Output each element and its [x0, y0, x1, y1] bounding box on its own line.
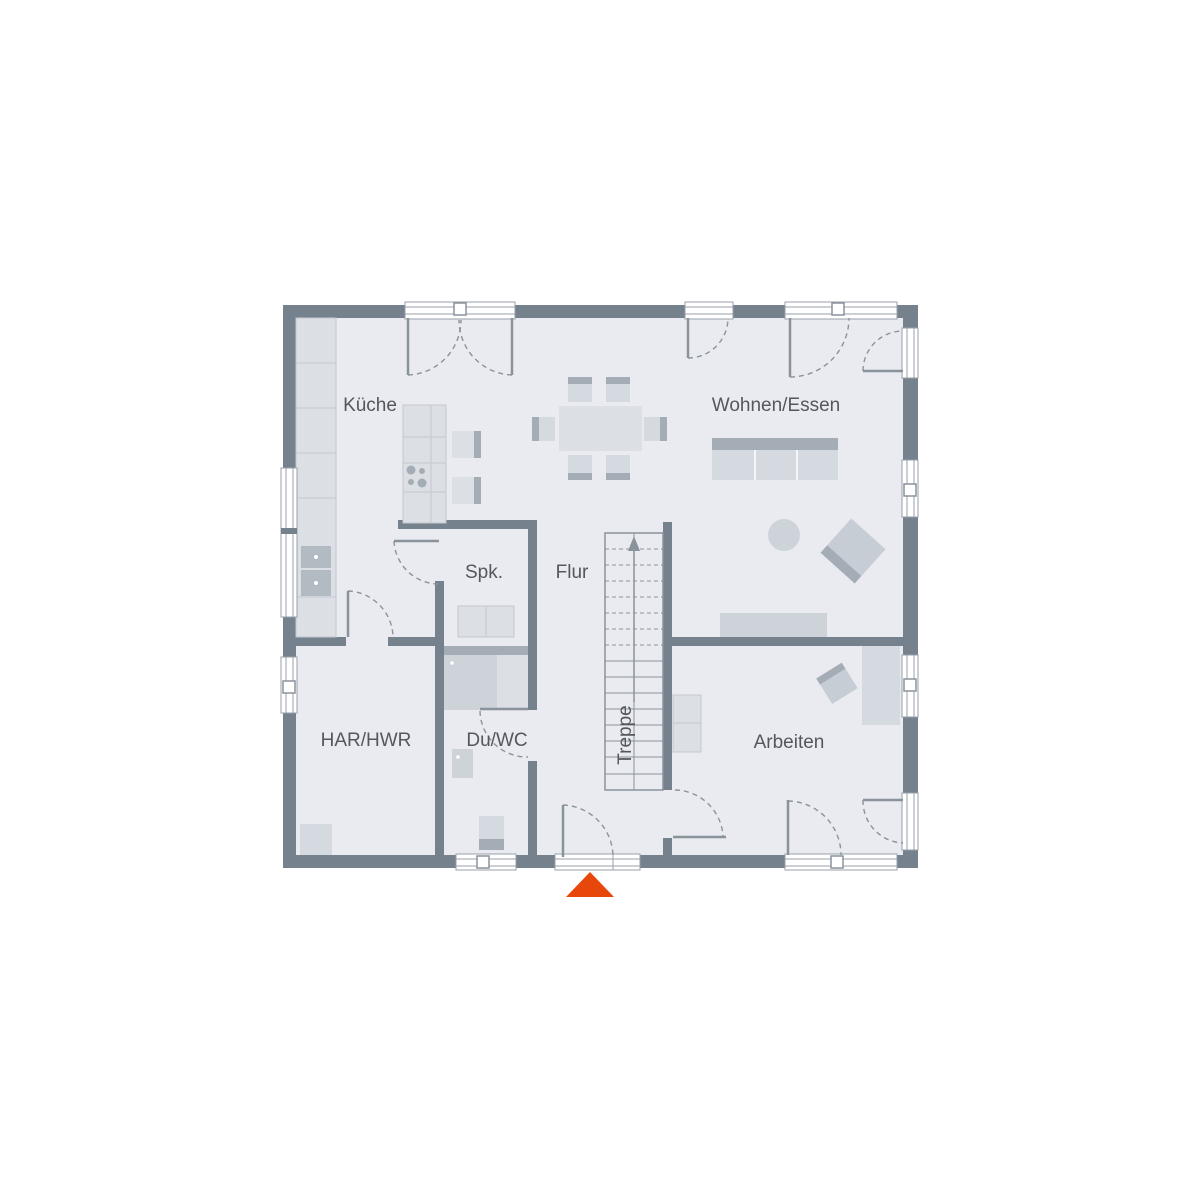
wall-duwc-right-top — [528, 646, 537, 710]
window-left-kitchen-mullion — [281, 528, 297, 534]
wall-har-top-right — [388, 637, 444, 646]
label-treppe: Treppe — [615, 705, 636, 765]
floorplan-canvas: Küche Wohnen/Essen Spk. Flur Treppe HAR/… — [0, 0, 1200, 1200]
floorplan-svg: Küche Wohnen/Essen Spk. Flur Treppe HAR/… — [0, 0, 1200, 1200]
wc-tank — [479, 816, 504, 839]
wall-arbeiten-top — [672, 637, 903, 646]
dining-chair-bottom-2-back — [606, 473, 630, 480]
kitchen-island-block — [403, 405, 446, 523]
entrance-marker-triangle — [566, 872, 614, 897]
dining-chair-right-back — [660, 417, 667, 441]
dining-chair-top-1-back — [568, 377, 592, 384]
wall-arbeiten-stub — [663, 838, 672, 855]
utility-appliance — [300, 824, 332, 855]
shower-head-band — [444, 646, 528, 655]
dining-chair-left-back — [532, 417, 539, 441]
wc-bowl — [479, 839, 504, 850]
cooktop-burner-3 — [408, 479, 414, 485]
window-left-kitchen — [281, 468, 297, 617]
wall-duwc-left — [435, 646, 444, 855]
wall-duwc-right-bottom — [528, 761, 537, 855]
dining-chair-bottom-1-back — [568, 473, 592, 480]
marker-top-kitchen — [454, 303, 466, 315]
dining-table — [559, 406, 642, 451]
wall-har-top-left — [296, 637, 346, 646]
marker-top-right — [832, 303, 844, 315]
sofa-backrest — [712, 438, 838, 450]
label-har-hwr: HAR/HWR — [321, 730, 412, 751]
wall-stair-right — [663, 522, 672, 790]
kitchen-stool-2-back — [474, 477, 481, 504]
sofa-seats — [712, 450, 838, 480]
window-right-4 — [902, 793, 918, 850]
entrance-door-opening — [555, 854, 640, 870]
cooktop-burner-4 — [418, 479, 427, 488]
label-arbeiten: Arbeiten — [754, 732, 825, 753]
sink-drain-dot-2 — [314, 581, 318, 585]
window-right-1 — [902, 328, 918, 378]
window-top-middle-door — [685, 302, 733, 319]
marker-left-utility — [283, 681, 295, 693]
marker-bottom-right — [831, 856, 843, 868]
shower-drain-dot — [450, 661, 454, 665]
sideboard — [720, 613, 827, 637]
wall-spk-right — [528, 529, 537, 646]
cooktop-burner-1 — [407, 466, 416, 475]
cooktop-burner-2 — [419, 468, 425, 474]
marker-right-2 — [904, 484, 916, 496]
marker-bottom-duwc — [477, 856, 489, 868]
outer-wall-right — [903, 305, 918, 868]
dining-chair-top-2-back — [606, 377, 630, 384]
desk — [862, 646, 900, 725]
sink-drain-dot-1 — [314, 555, 318, 559]
label-du-wc: Du/WC — [466, 730, 527, 751]
bath-sink-dot — [456, 755, 460, 759]
coffee-table-round — [768, 519, 800, 551]
label-flur: Flur — [556, 562, 589, 583]
label-wohnen-essen: Wohnen/Essen — [712, 395, 841, 416]
bath-sink — [452, 749, 473, 778]
wall-spk-left — [435, 581, 444, 646]
label-kueche: Küche — [343, 395, 397, 416]
marker-right-3 — [904, 679, 916, 691]
kitchen-stool-1-back — [474, 431, 481, 458]
label-spk: Spk. — [465, 562, 503, 583]
